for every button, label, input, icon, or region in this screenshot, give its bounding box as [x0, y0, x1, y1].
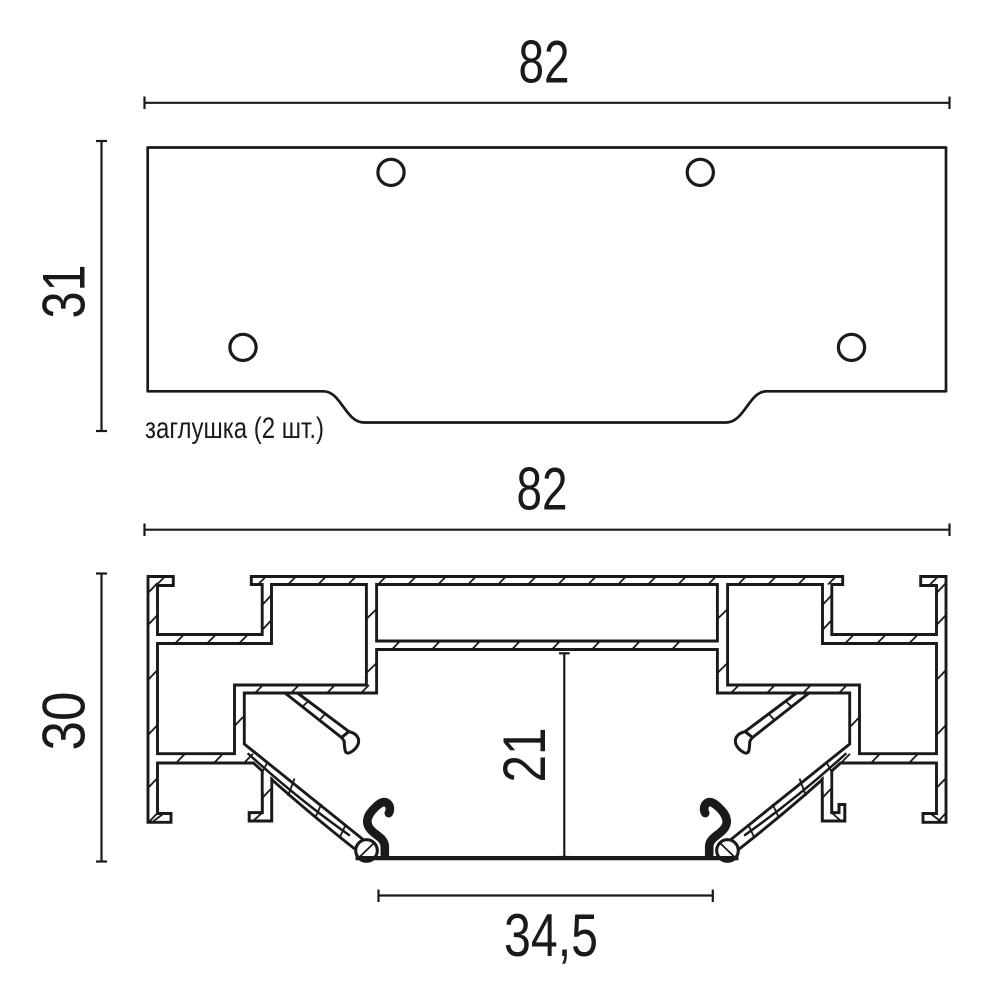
svg-text:82: 82	[519, 28, 570, 95]
svg-text:заглушка (2 шт.): заглушка (2 шт.)	[145, 412, 324, 445]
svg-text:21: 21	[491, 728, 558, 783]
svg-text:30: 30	[31, 692, 98, 751]
svg-text:82: 82	[517, 456, 568, 523]
svg-text:34,5: 34,5	[504, 902, 598, 969]
svg-text:31: 31	[31, 265, 98, 319]
